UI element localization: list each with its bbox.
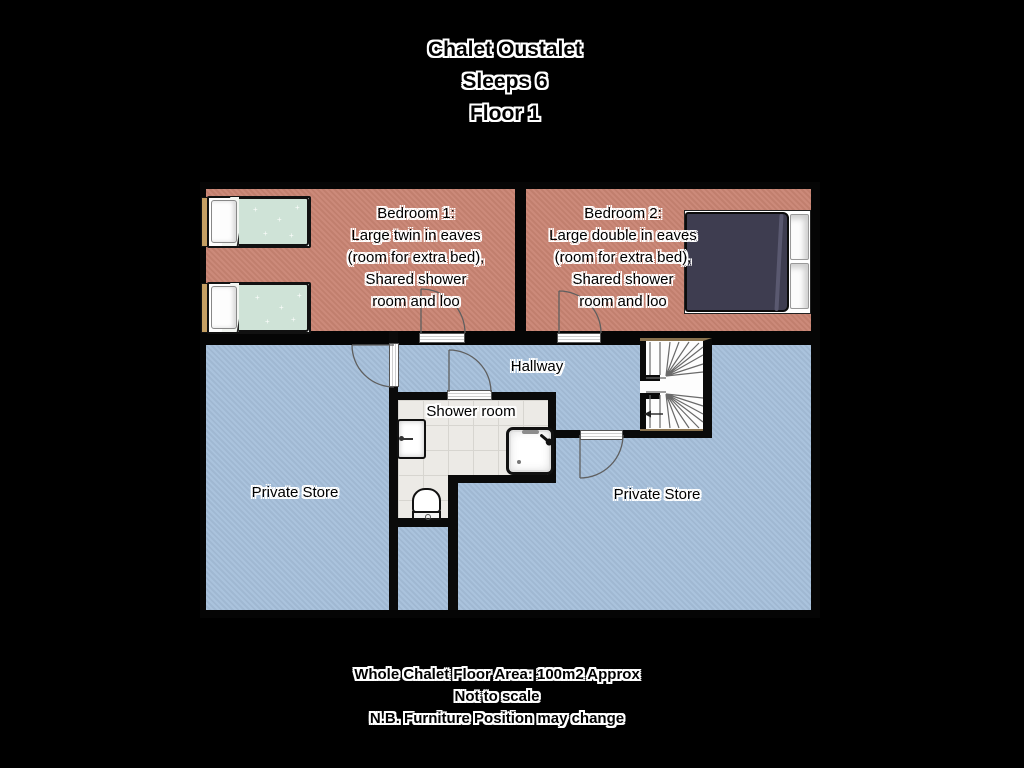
shower-door-handle [522,430,539,434]
toilet-cistern [412,511,441,520]
page-title: Chalet Oustalet Sleeps 6 Floor 1 [0,34,1010,130]
bed-headboard [201,197,208,247]
bed-pillow [790,214,809,260]
bed-duvet: ++ ++ + [239,283,309,332]
floor-plan: ++ ++ + ++ ++ + [200,182,820,618]
label-hallway: Hallway [477,356,597,378]
shower-head-icon [539,433,550,443]
shower-tray [506,427,554,475]
label-private-store-right: Private Store [577,484,737,506]
bed-pillow [211,200,237,243]
twin-bed-2: ++ ++ + [201,282,311,334]
label-bedroom-1: Bedroom 1: Large twin in eaves (room for… [316,203,516,313]
stair-wall-nib-upper [640,375,660,381]
sink [397,419,426,459]
wall-shower-bottom [448,475,556,483]
title-line-chalet-name: Chalet Oustalet [0,34,1010,66]
stair-wall-left-lower [640,397,646,431]
door-bedroom-2 [557,333,601,343]
stair-wall-left-upper [640,341,646,377]
toilet-bowl [412,488,441,513]
title-line-sleeps: Sleeps 6 [0,66,1010,98]
footer-line-scale: Not to scale [0,686,994,708]
label-private-store-left: Private Store [215,482,375,504]
door-private-store-right [580,430,623,440]
footer-line-furniture: N.B. Furniture Position may change [0,708,994,730]
door-bedroom-1 [419,333,465,343]
bed-headboard [201,283,208,333]
twin-bed-1: ++ ++ + [201,196,311,248]
door-private-store-left [389,343,399,387]
bed-duvet: ++ ++ + [239,197,309,246]
bed-pillow [790,263,809,309]
title-line-floor: Floor 1 [0,98,1010,130]
tap-icon [401,438,413,440]
bed-pillow [211,286,237,329]
label-bedroom-2: Bedroom 2: Large double in eaves (room f… [523,203,723,313]
door-shower-room [447,390,492,400]
footer-line-area: Whole Chalet Floor Area: 100m2 Approx [0,664,994,686]
label-shower-room: Shower room [401,401,541,423]
wall-hallway-store-b [623,430,640,438]
wall-hallway-store-a [556,430,580,438]
shower-drain [517,460,521,464]
wall-inner-vertical [448,475,458,610]
stair-bottom-trim [640,429,703,431]
staircase [640,338,712,438]
footer-notes: Whole Chalet Floor Area: 100m2 Approx No… [0,664,994,730]
